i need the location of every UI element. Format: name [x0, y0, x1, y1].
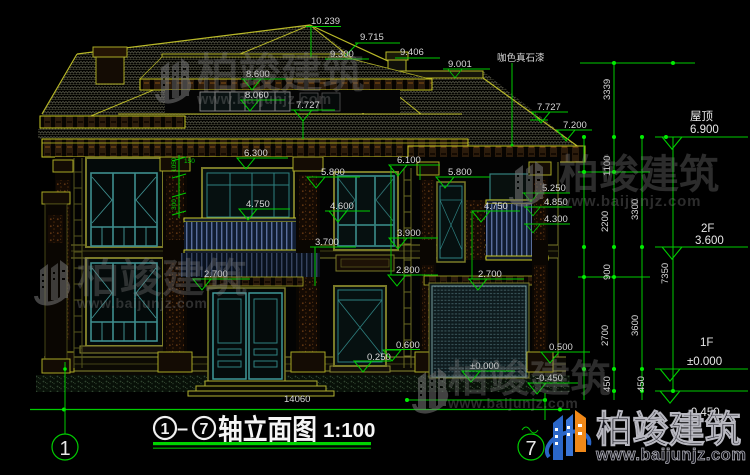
svg-text:2.700: 2.700 — [478, 269, 502, 280]
svg-text:3.600: 3.600 — [695, 235, 724, 247]
svg-text:柏竣建筑: 柏竣建筑 — [559, 153, 719, 197]
svg-text:www.baijunjz.com: www.baijunjz.com — [76, 295, 207, 311]
svg-text:6.900: 6.900 — [690, 124, 719, 136]
svg-text:2200: 2200 — [600, 211, 611, 232]
svg-text:7350: 7350 — [660, 263, 671, 284]
svg-text:900: 900 — [602, 264, 613, 280]
svg-text:屋顶: 屋顶 — [690, 110, 713, 123]
svg-text:7: 7 — [200, 421, 209, 438]
svg-text:10.239: 10.239 — [311, 16, 340, 27]
svg-text:3.700: 3.700 — [315, 237, 339, 248]
svg-text:0.500: 0.500 — [549, 342, 573, 353]
svg-text:–: – — [177, 418, 188, 440]
svg-text:www.baijunjz.com: www.baijunjz.com — [196, 92, 332, 108]
svg-text:2F: 2F — [701, 223, 714, 235]
svg-text:9.406: 9.406 — [400, 47, 424, 58]
svg-text:1: 1 — [161, 421, 170, 438]
svg-text:柏竣建筑: 柏竣建筑 — [596, 408, 741, 450]
svg-text:2.800: 2.800 — [396, 265, 420, 276]
svg-text:9.001: 9.001 — [448, 59, 472, 70]
svg-text:1: 1 — [59, 438, 70, 460]
svg-text:6.100: 6.100 — [397, 155, 421, 166]
svg-text:www.baijunjz.com: www.baijunjz.com — [595, 446, 746, 464]
svg-text:5.800: 5.800 — [448, 167, 472, 178]
svg-text:咖色真石漆: 咖色真石漆 — [497, 52, 545, 64]
svg-text:4.750: 4.750 — [246, 199, 270, 210]
svg-text:14060: 14060 — [284, 394, 310, 405]
svg-text:7.727: 7.727 — [537, 102, 561, 113]
svg-text:www.baijunjz.com: www.baijunjz.com — [447, 395, 578, 411]
svg-text:7.200: 7.200 — [563, 120, 587, 131]
svg-text:6.300: 6.300 — [244, 148, 268, 159]
svg-text:3600: 3600 — [630, 315, 641, 336]
svg-text:4.600: 4.600 — [330, 201, 354, 212]
svg-text:300: 300 — [171, 199, 178, 210]
svg-text:1F: 1F — [700, 337, 713, 349]
svg-text:±0.000: ±0.000 — [687, 356, 722, 368]
svg-text:2700: 2700 — [600, 325, 611, 346]
svg-text:9.715: 9.715 — [360, 32, 384, 43]
svg-text:3.900: 3.900 — [397, 228, 421, 239]
svg-text:1:100: 1:100 — [323, 419, 375, 442]
svg-text:5.800: 5.800 — [321, 167, 345, 178]
svg-text:www.baijunjz.com: www.baijunjz.com — [558, 193, 701, 210]
svg-text:3339: 3339 — [602, 79, 613, 100]
svg-text:轴立面图: 轴立面图 — [218, 413, 317, 445]
svg-text:4.750: 4.750 — [484, 201, 508, 212]
svg-text:柏竣建筑: 柏竣建筑 — [197, 50, 364, 97]
svg-text:4.300: 4.300 — [544, 214, 568, 225]
svg-text:450: 450 — [636, 376, 647, 392]
svg-text:7: 7 — [525, 438, 536, 460]
svg-text:150: 150 — [184, 158, 195, 165]
svg-text:1050: 1050 — [171, 157, 178, 172]
